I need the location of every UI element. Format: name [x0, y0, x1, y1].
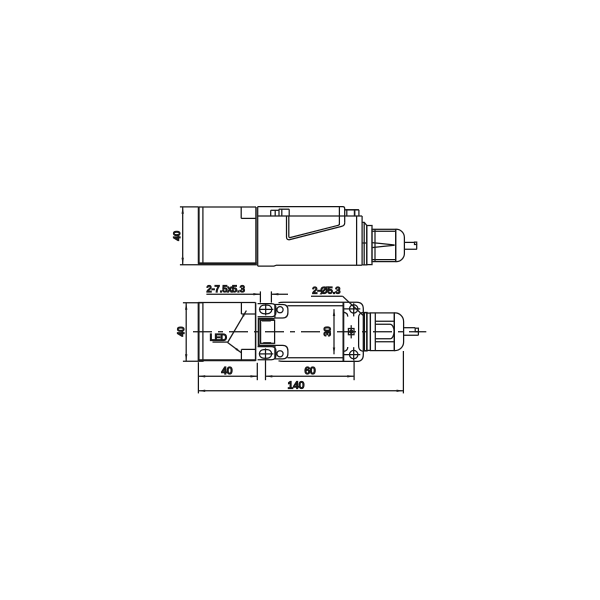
svg-text:LED: LED	[210, 333, 227, 343]
svg-text:40: 40	[176, 327, 186, 337]
svg-text:30: 30	[322, 327, 332, 337]
svg-text:40: 40	[221, 366, 233, 377]
svg-text:140: 140	[288, 380, 305, 391]
svg-text:2-Ø5.3: 2-Ø5.3	[312, 286, 340, 296]
svg-text:60: 60	[304, 366, 316, 377]
svg-text:2-7.5x5.3: 2-7.5x5.3	[207, 284, 245, 294]
svg-text:40: 40	[172, 231, 182, 241]
